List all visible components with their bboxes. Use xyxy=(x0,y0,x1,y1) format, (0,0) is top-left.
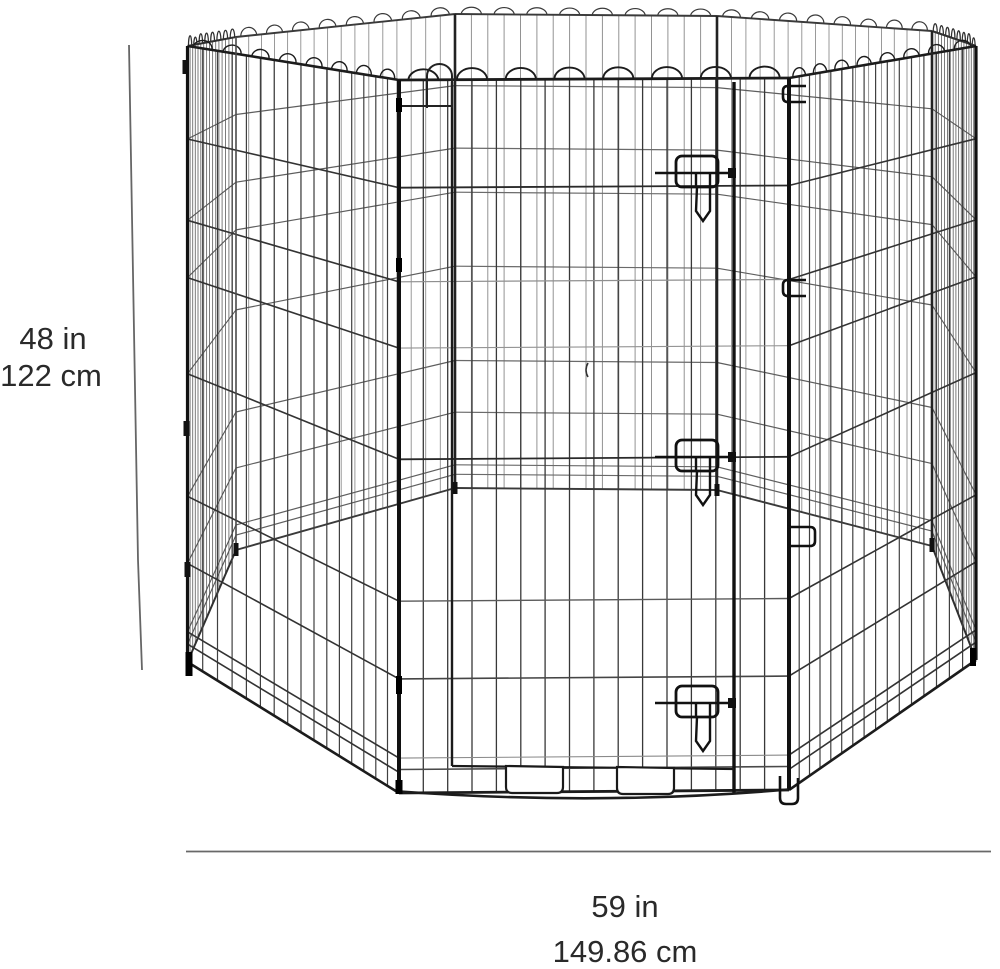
svg-text:48 in: 48 in xyxy=(19,321,86,356)
svg-text:122 cm: 122 cm xyxy=(0,358,102,393)
svg-text:59 in: 59 in xyxy=(591,889,658,924)
svg-text:149.86 cm: 149.86 cm xyxy=(553,934,698,964)
